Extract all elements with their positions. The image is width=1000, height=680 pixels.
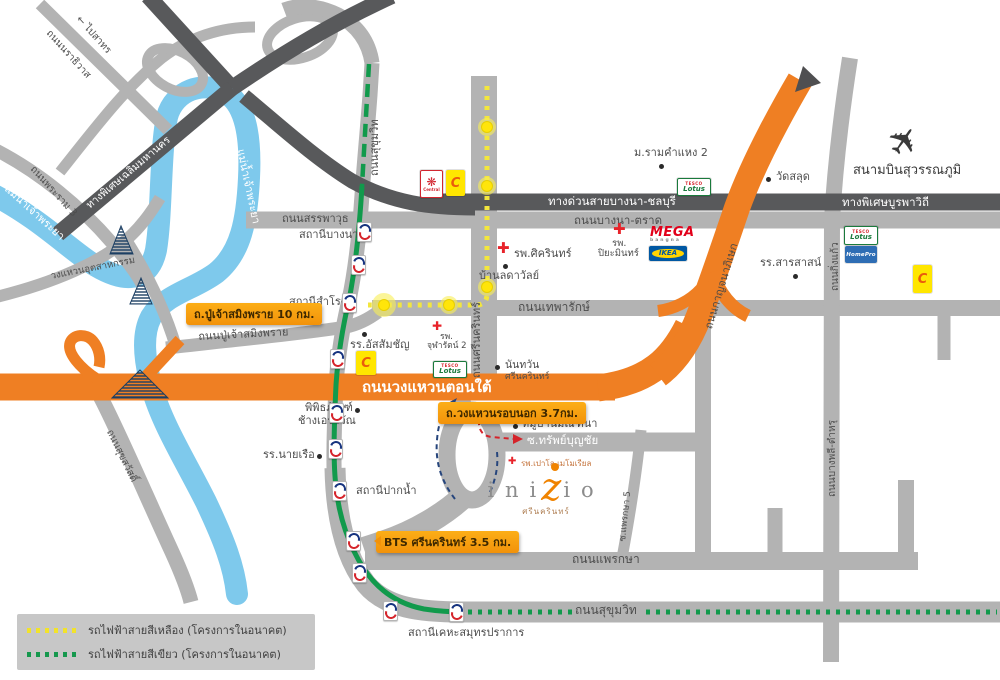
place-label-nantawan-1: นันทวัน [505, 359, 539, 371]
place-dot-ram2 [659, 164, 664, 169]
bts-station-icon [383, 601, 398, 621]
bts-station-icon [357, 222, 372, 242]
lotus-logo: TESCO Lotus [433, 361, 467, 378]
map-canvas [0, 0, 1000, 680]
place-label-ladawan: บ้านลดาวัลย์ [479, 270, 539, 283]
bts-station-icon [330, 349, 345, 369]
place-label-nantawan-2: ศรีนครินทร์ [505, 372, 549, 382]
station-label-paknam: สถานีปากน้ำ [356, 485, 417, 498]
bigc-logo: C [913, 265, 932, 293]
hospital-cross-icon: ✚ [432, 320, 442, 332]
station-label-kheha: สถานีเคหะสมุทรปราการ [408, 627, 524, 640]
distance-badge-bts: BTS ศรีนครินทร์ 3.5 กม. [376, 531, 519, 553]
bts-station-icon [449, 602, 464, 622]
road-label-kingkaew: ถนนกิ่งแก้ว [830, 242, 842, 291]
central-logo: ❋ Central [420, 170, 443, 198]
lotus-logo: TESCO Lotus [844, 226, 878, 245]
place-dot-sarasas [793, 274, 798, 279]
lotus-logo: TESCO Lotus [677, 178, 711, 196]
road-label-burapha: ทางพิเศษบูรพาวิถี [842, 196, 929, 209]
mega-bangna-logo: MEGA bangna [650, 226, 695, 244]
place-label-piyamin-2: ปิยะมินทร์ [598, 249, 639, 260]
road-label-bangna-chonburi: ทางด่วนสายบางนา-ชลบุรี [548, 195, 676, 208]
bts-station-icon [352, 563, 367, 583]
place-dot-erawan [355, 408, 360, 413]
place-dot-wat-salud [766, 177, 771, 182]
hospital-cross-icon: ✚ [613, 222, 626, 237]
place-dot-navy [317, 454, 322, 459]
road-label-praksa: ถนนแพรกษา [572, 553, 640, 567]
place-label-assumption: รร.อัสสัมชัญ [350, 339, 409, 352]
place-label-wat-salud: วัดสลุด [776, 171, 810, 184]
project-logo-z: z [541, 472, 561, 502]
distance-badge-pujao: ถ.ปู่เจ้าสมิงพราย 10 กม. [186, 303, 322, 325]
place-label-navy: รร.นายเรือ [263, 449, 315, 462]
yellow-dotted-swatch [27, 628, 79, 633]
road-label-sanphawut: ถนนสรรพาวุธ [282, 213, 349, 226]
legend: รถไฟฟ้าสายสีเหลือง (โครงการในอนาคต) รถไฟ… [17, 614, 315, 670]
distance-badge-outer-ring: ถ.วงแหวนรอบนอก 3.7กม. [438, 402, 586, 424]
location-map: ถนนนราธิวาส ← ไปสาทร ทางพิเศษเฉลิมมหานคร… [0, 0, 1000, 680]
bigc-logo: C [356, 351, 376, 375]
bts-station-icon [332, 481, 347, 501]
hospital-cross-icon: ✚ [508, 457, 516, 467]
place-label-ram2: ม.รามคำแหง 2 [634, 147, 708, 160]
place-dot-mantana [513, 424, 518, 429]
road-label-srinakarin: ถนนศรีนครินทร์ [471, 302, 484, 378]
road-label-bangphli-tamru: ถนนบางพลี-ตำหรุ [827, 420, 839, 497]
bts-station-icon [351, 255, 366, 275]
project-logo-text: io [563, 478, 604, 502]
bts-station-icon [342, 293, 357, 313]
road-label-ring-south: ถนนวงแหวนตอนใต้ [362, 379, 492, 396]
road-label-sukhumvit-north: ถนนสุขุมวิท [369, 119, 382, 176]
green-dotted-swatch [27, 652, 79, 657]
place-dot-nantawan [495, 365, 500, 370]
bts-station-icon [329, 403, 344, 423]
place-dot-assumption [362, 332, 367, 337]
road-label-sukhumvit-south: ถนนสุขุมวิท [575, 604, 637, 618]
project-logo-text: ini [487, 478, 547, 502]
station-label-bangna: สถานีบางนา [299, 229, 358, 242]
legend-item-green-line: รถไฟฟ้าสายสีเขียว (โครงการในอนาคต) [27, 645, 305, 663]
road-label-theparak: ถนนเทพารักษ์ [518, 301, 590, 315]
bts-station-icon [346, 531, 361, 551]
road-label-sap-bunchai: ซ.ทรัพย์บุญชัย [527, 434, 598, 447]
homepro-logo: HomePro [845, 246, 877, 263]
bts-station-icon [328, 439, 343, 459]
place-label-airport: สนามบินสุวรรณภูมิ [853, 164, 961, 179]
bigc-logo: C [446, 170, 465, 196]
project-logo-inizio: ini z io ศรีนครินทร์ [478, 472, 614, 518]
place-label-chularat-2: จุฬารัตน์ 2 [427, 342, 467, 352]
place-label-sarasas: รร.สารสาสน์ [760, 257, 821, 270]
place-label-erawan-2: ช้างเอราวัณ [298, 415, 356, 428]
ikea-logo: IKEA [649, 246, 687, 261]
hospital-cross-icon: ✚ [497, 241, 510, 256]
place-label-sikarin: รพ.ศิครินทร์ [514, 248, 572, 261]
legend-item-yellow-line: รถไฟฟ้าสายสีเหลือง (โครงการในอนาคต) [27, 621, 305, 639]
